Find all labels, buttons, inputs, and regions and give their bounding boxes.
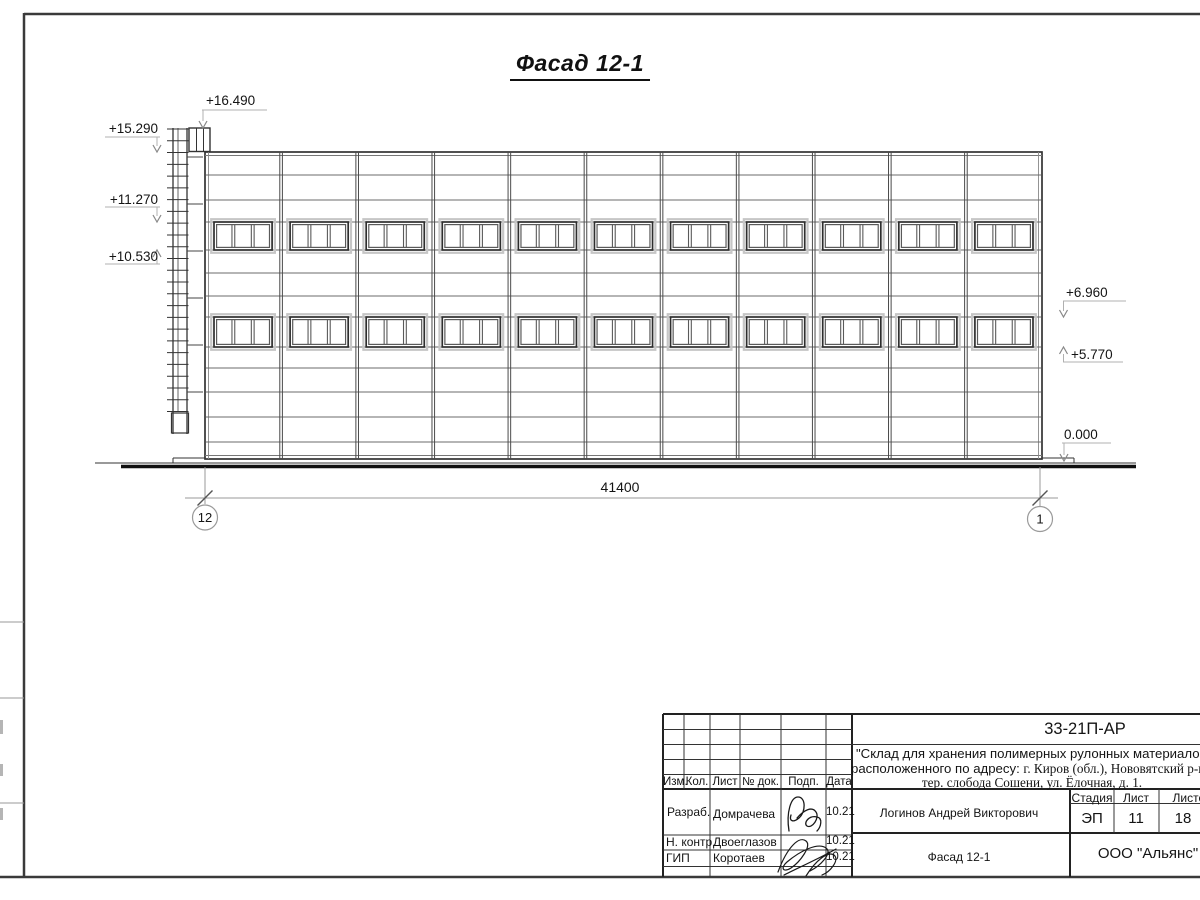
- facade-window: [823, 317, 881, 347]
- facade-window: [823, 222, 881, 250]
- ladder-base-box: [172, 413, 189, 433]
- stamp-role-razrab: Разраб.: [667, 805, 710, 819]
- elevation-arrow: [1060, 347, 1068, 354]
- elevation-value: +16.490: [206, 93, 255, 108]
- elevation-value: +5.770: [1071, 347, 1113, 362]
- facade-window: [975, 222, 1033, 250]
- stamp-doc-number: 33-21П-АР: [1044, 720, 1126, 739]
- elevation-value: +11.270: [110, 192, 158, 207]
- stamp-sheets-header: Листов: [1173, 791, 1200, 805]
- stamp-role-gip: ГИП: [666, 851, 690, 865]
- stamp-sheet-name: Фасад 12-1: [928, 850, 991, 864]
- stamp-project-line2-prefix: расположенного по адресу:: [851, 761, 1023, 776]
- elevation-value: +6.960: [1066, 285, 1108, 300]
- facade-window: [366, 317, 424, 347]
- grid-axis-label: 1: [1036, 512, 1043, 527]
- stamp-col-izm: Изм.: [663, 776, 684, 788]
- drawing-sheet: 41400121+16.490+15.290+11.270+10.530+6.9…: [0, 0, 1200, 900]
- stamp-role-ncontr: Н. контр.: [666, 835, 716, 849]
- stamp-date-ncontr: 10.21: [826, 835, 852, 847]
- facade-window: [214, 222, 272, 250]
- facade-window: [290, 317, 348, 347]
- stamp-col-podp: Подп.: [781, 776, 826, 788]
- facade-window: [518, 222, 576, 250]
- stamp-project-line1: "Склад для хранения полимерных рулонных …: [856, 746, 1200, 761]
- stamp-col-kol: Кол.: [684, 776, 710, 788]
- stamp-supervisor: Логинов Андрей Викторович: [880, 806, 1038, 820]
- facade-window: [899, 222, 957, 250]
- elevation-arrow: [1060, 310, 1068, 317]
- stamp-date-razrab: 10.21: [826, 806, 852, 818]
- stamp-col-list: Лист: [710, 776, 740, 788]
- grid-axis-label: 12: [198, 510, 212, 525]
- stamp-sheet-value: 11: [1128, 810, 1144, 827]
- parapet-box: [189, 128, 210, 152]
- elevation-value: +10.530: [109, 249, 158, 264]
- stamp-name-gip: Коротаев: [713, 851, 765, 865]
- margin-strip-label-fragment: [0, 764, 3, 776]
- drawing-title: Фасад 12-1: [510, 50, 650, 81]
- facade-window: [442, 222, 500, 250]
- stamp-stage-value: ЭП: [1081, 810, 1103, 827]
- dimension-value: 41400: [601, 479, 640, 495]
- stamp-company: ООО "Альянс": [1098, 845, 1198, 862]
- facade-window: [747, 222, 805, 250]
- stamp-project-line3: тер. слобода Сошени, ул. Ёлочная, д. 1.: [922, 775, 1142, 791]
- facade-window: [671, 222, 729, 250]
- elevation-value: +15.290: [109, 121, 158, 136]
- stamp-stage-header: Стадия: [1072, 791, 1113, 805]
- facade-window: [442, 317, 500, 347]
- stamp-name-razrab: Домрачева: [713, 807, 775, 821]
- stamp-sheet-header: Лист: [1123, 791, 1149, 805]
- facade-window: [518, 317, 576, 347]
- facade-window: [594, 222, 652, 250]
- facade-window: [899, 317, 957, 347]
- margin-strip-label-fragment: [0, 720, 3, 734]
- stamp-col-data: Дата: [826, 776, 852, 788]
- stamp-name-ncontr: Двоеглазов: [713, 835, 777, 849]
- facade-window: [290, 222, 348, 250]
- stamp-project-line2-address: г. Киров (обл.), Нововятский р-н,: [1023, 761, 1200, 776]
- facade-window: [594, 317, 652, 347]
- margin-strip-label-fragment: [0, 808, 3, 820]
- facade-window: [366, 222, 424, 250]
- facade-window: [747, 317, 805, 347]
- stamp-sheets-value: 18: [1175, 810, 1192, 827]
- elevation-value: 0.000: [1064, 427, 1098, 442]
- facade-outline: [205, 152, 1042, 459]
- elevation-arrow: [153, 215, 161, 222]
- signature-razrab: [788, 797, 821, 831]
- facade-window: [214, 317, 272, 347]
- facade-window: [671, 317, 729, 347]
- facade-window: [975, 317, 1033, 347]
- stamp-col-docno: № док.: [740, 776, 781, 788]
- elevation-arrow: [199, 121, 207, 128]
- elevation-arrow: [153, 145, 161, 152]
- stamp-date-gip: 10.21: [826, 851, 852, 863]
